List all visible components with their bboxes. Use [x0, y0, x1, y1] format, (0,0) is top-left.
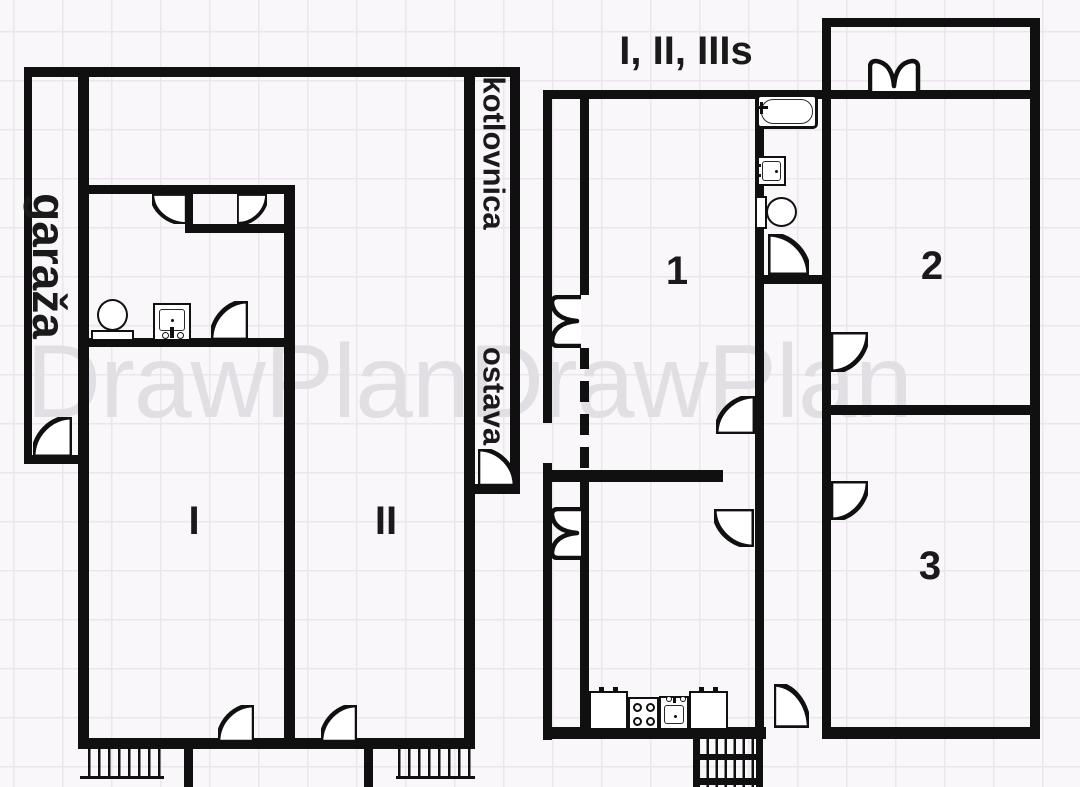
plan-title: I, II, IIIs — [619, 31, 752, 71]
bathtub-icon — [756, 94, 818, 129]
wall — [364, 749, 373, 787]
room-label-I: I — [188, 501, 199, 541]
stairs-baseline — [80, 776, 164, 779]
wall — [24, 67, 520, 77]
door-swing-icon — [152, 194, 187, 224]
door-swing-icon — [831, 332, 868, 372]
window-icon — [549, 507, 582, 560]
room-label-1: 1 — [666, 251, 688, 291]
sink-icon — [153, 303, 191, 341]
door-swing-icon — [218, 705, 254, 742]
door-swing-icon — [237, 194, 267, 224]
wall — [1030, 18, 1040, 738]
wall — [580, 90, 589, 295]
door-swing-icon — [716, 396, 755, 434]
room-label-II: II — [375, 501, 397, 541]
wall — [822, 727, 1040, 739]
boiler-room-label: kotlovnica — [479, 76, 510, 229]
door-swing-icon — [714, 509, 754, 547]
garage-label: garaža — [26, 193, 72, 339]
window-icon — [868, 58, 924, 92]
stairs-icon — [398, 749, 472, 778]
wall — [755, 275, 831, 284]
wall — [543, 470, 723, 482]
wall — [510, 67, 520, 494]
wall — [184, 749, 193, 787]
wall — [822, 405, 1040, 415]
storage-label: ostava — [479, 347, 510, 445]
wall-dashed — [580, 348, 589, 470]
stairs-icon — [693, 739, 763, 787]
floor-plan-canvas: DrawPlanDrawPlan — [0, 0, 1080, 787]
wall — [284, 185, 295, 749]
window-icon — [549, 295, 582, 348]
wall — [464, 67, 475, 749]
door-swing-icon — [211, 301, 248, 340]
kitchen-cabinet-icon — [589, 691, 628, 730]
wall — [78, 67, 89, 749]
wall — [185, 224, 295, 233]
kitchen-sink-icon — [659, 696, 689, 730]
toilet-icon — [97, 299, 128, 331]
door-swing-icon — [774, 684, 809, 728]
stove-icon — [628, 697, 659, 730]
door-swing-icon — [321, 705, 357, 742]
door-swing-icon — [768, 234, 809, 275]
wall — [822, 18, 831, 90]
door-swing-icon — [831, 481, 868, 520]
wall — [822, 18, 1040, 27]
room-label-3: 3 — [919, 546, 941, 586]
toilet-icon — [766, 197, 797, 227]
door-swing-icon — [33, 417, 72, 457]
toilet-tank-icon — [91, 330, 134, 341]
kitchen-cabinet-icon — [689, 691, 728, 730]
wall — [543, 90, 552, 423]
room-label-2: 2 — [921, 246, 943, 286]
stairs-baseline — [396, 776, 475, 779]
sink-icon — [757, 156, 786, 186]
wall — [543, 463, 552, 740]
wall — [78, 738, 475, 749]
door-swing-icon — [478, 449, 515, 486]
stairs-icon — [88, 749, 162, 778]
